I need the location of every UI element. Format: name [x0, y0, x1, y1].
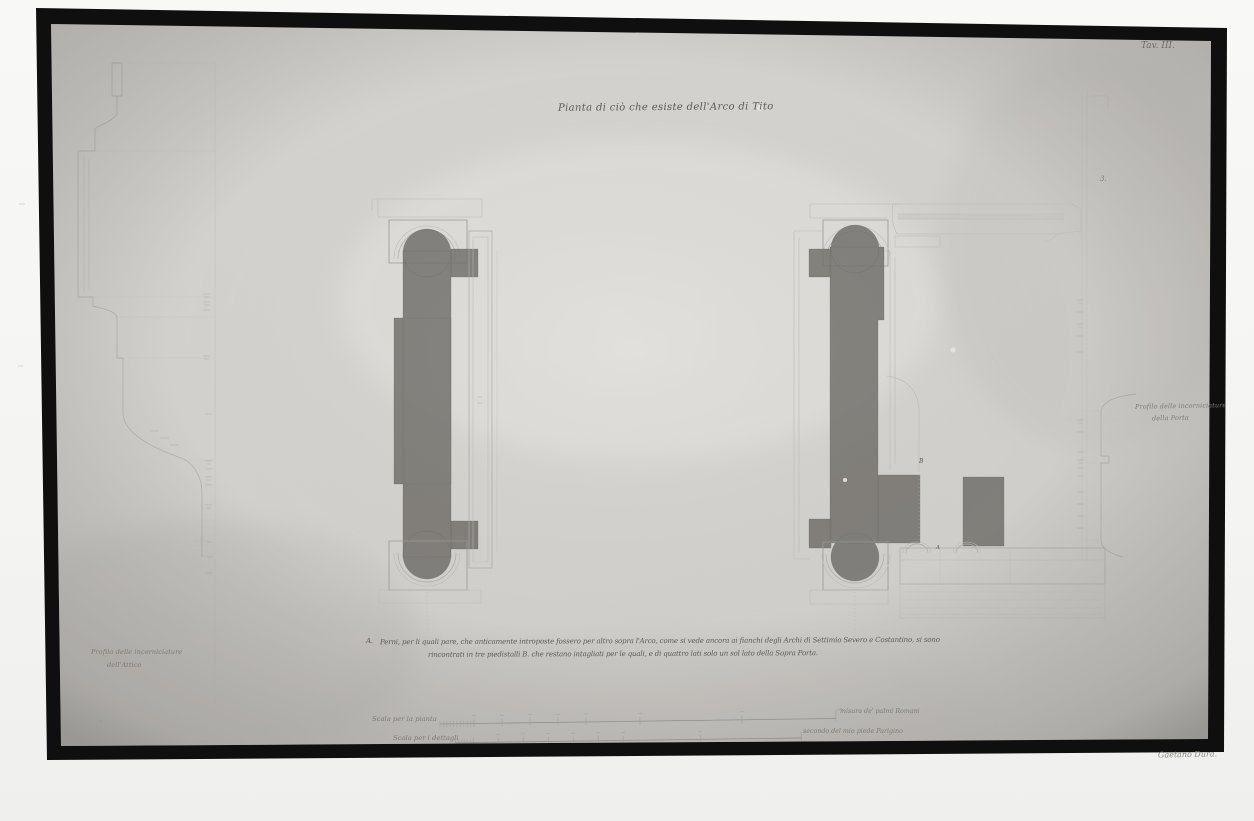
plan-scale-unit: misura de' palmi Romani — [840, 709, 920, 715]
right-profile-caption-line2: della Porta — [1152, 415, 1189, 422]
detail-scale-unit: secondo del mio piede Parigino — [803, 729, 903, 735]
plate-number-label: Tav. III. — [1141, 42, 1175, 51]
margin-specks — [18, 204, 25, 366]
plate-title: Pianta di ciò che esiste dell'Arco di Ti… — [558, 102, 774, 114]
scanned-plate-photo: Tav. III. Pianta di ciò che esiste dell'… — [0, 0, 1254, 821]
plan-scale-label: Scala per la pianta — [372, 716, 437, 723]
annotation-letter-b: B — [919, 459, 923, 465]
right-profile-caption-line1: Profilo delle incorniciature — [1135, 402, 1226, 410]
detail-scale-label: Scala per i dettagli — [393, 735, 459, 742]
annotation-letter-a: A — [936, 546, 940, 552]
footnote-marker: A. — [366, 638, 373, 645]
margin-number: 3. — [1100, 176, 1107, 183]
left-profile-caption-line2: dell'Attico — [107, 662, 142, 669]
plate-drawing — [0, 0, 1254, 821]
engraver-signature: Gaetano Dura. — [1158, 750, 1217, 759]
left-profile-caption-line1: Profilo delle incorniciature — [91, 649, 182, 656]
